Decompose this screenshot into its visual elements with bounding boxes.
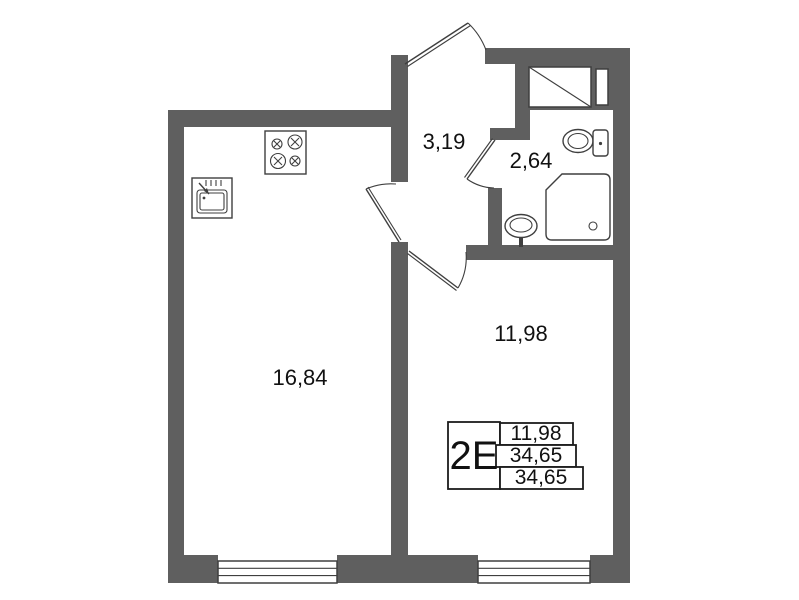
wall-middle-lower [391,242,408,555]
stamp-total-area-with-balcony: 34,65 [515,466,568,489]
room-label-room: 11,98 [494,321,547,346]
vent-box-small [596,69,608,105]
shower-tray [546,174,610,240]
window-right-frame [478,561,590,583]
wall-middle-upper [391,55,408,182]
window-left [218,555,337,583]
bathroom-sink-pedestal [519,237,523,247]
wall-bathroom-jamb [488,188,502,248]
stamp-type-label: 2E [450,434,499,478]
kitchen-sink-icon [192,178,232,218]
wall-kitchen-top [168,110,408,127]
vent-shaft-icon [529,67,608,107]
floor-plan: 16,84 3,19 2,64 11,98 2E 11,98 34,65 34,… [0,0,799,600]
window-right [478,555,590,583]
window-left-frame [218,561,337,583]
wall-bathroom-left [515,64,530,133]
floor-plan-drawing: 16,84 3,19 2,64 11,98 2E 11,98 34,65 34,… [0,0,799,600]
wall-left-outer [168,110,184,583]
wall-hall-room [466,245,613,260]
wall-top-right [485,48,630,64]
kitchen-sink-drain-dot [203,197,206,200]
wall-bathroom-stub [490,128,530,140]
stamp-living-area: 11,98 [511,422,562,445]
stove-icon [265,131,306,174]
room-label-bathroom: 2,64 [510,148,553,173]
wall-right-outer [613,48,630,583]
shower-icon [546,174,610,240]
toilet-tank-button [599,142,602,145]
room-label-hall: 3,19 [423,129,466,154]
stamp-total-area: 34,65 [510,444,563,467]
room-label-kitchen-living: 16,84 [272,365,327,390]
stamp-table: 2E 11,98 34,65 34,65 [448,422,583,489]
